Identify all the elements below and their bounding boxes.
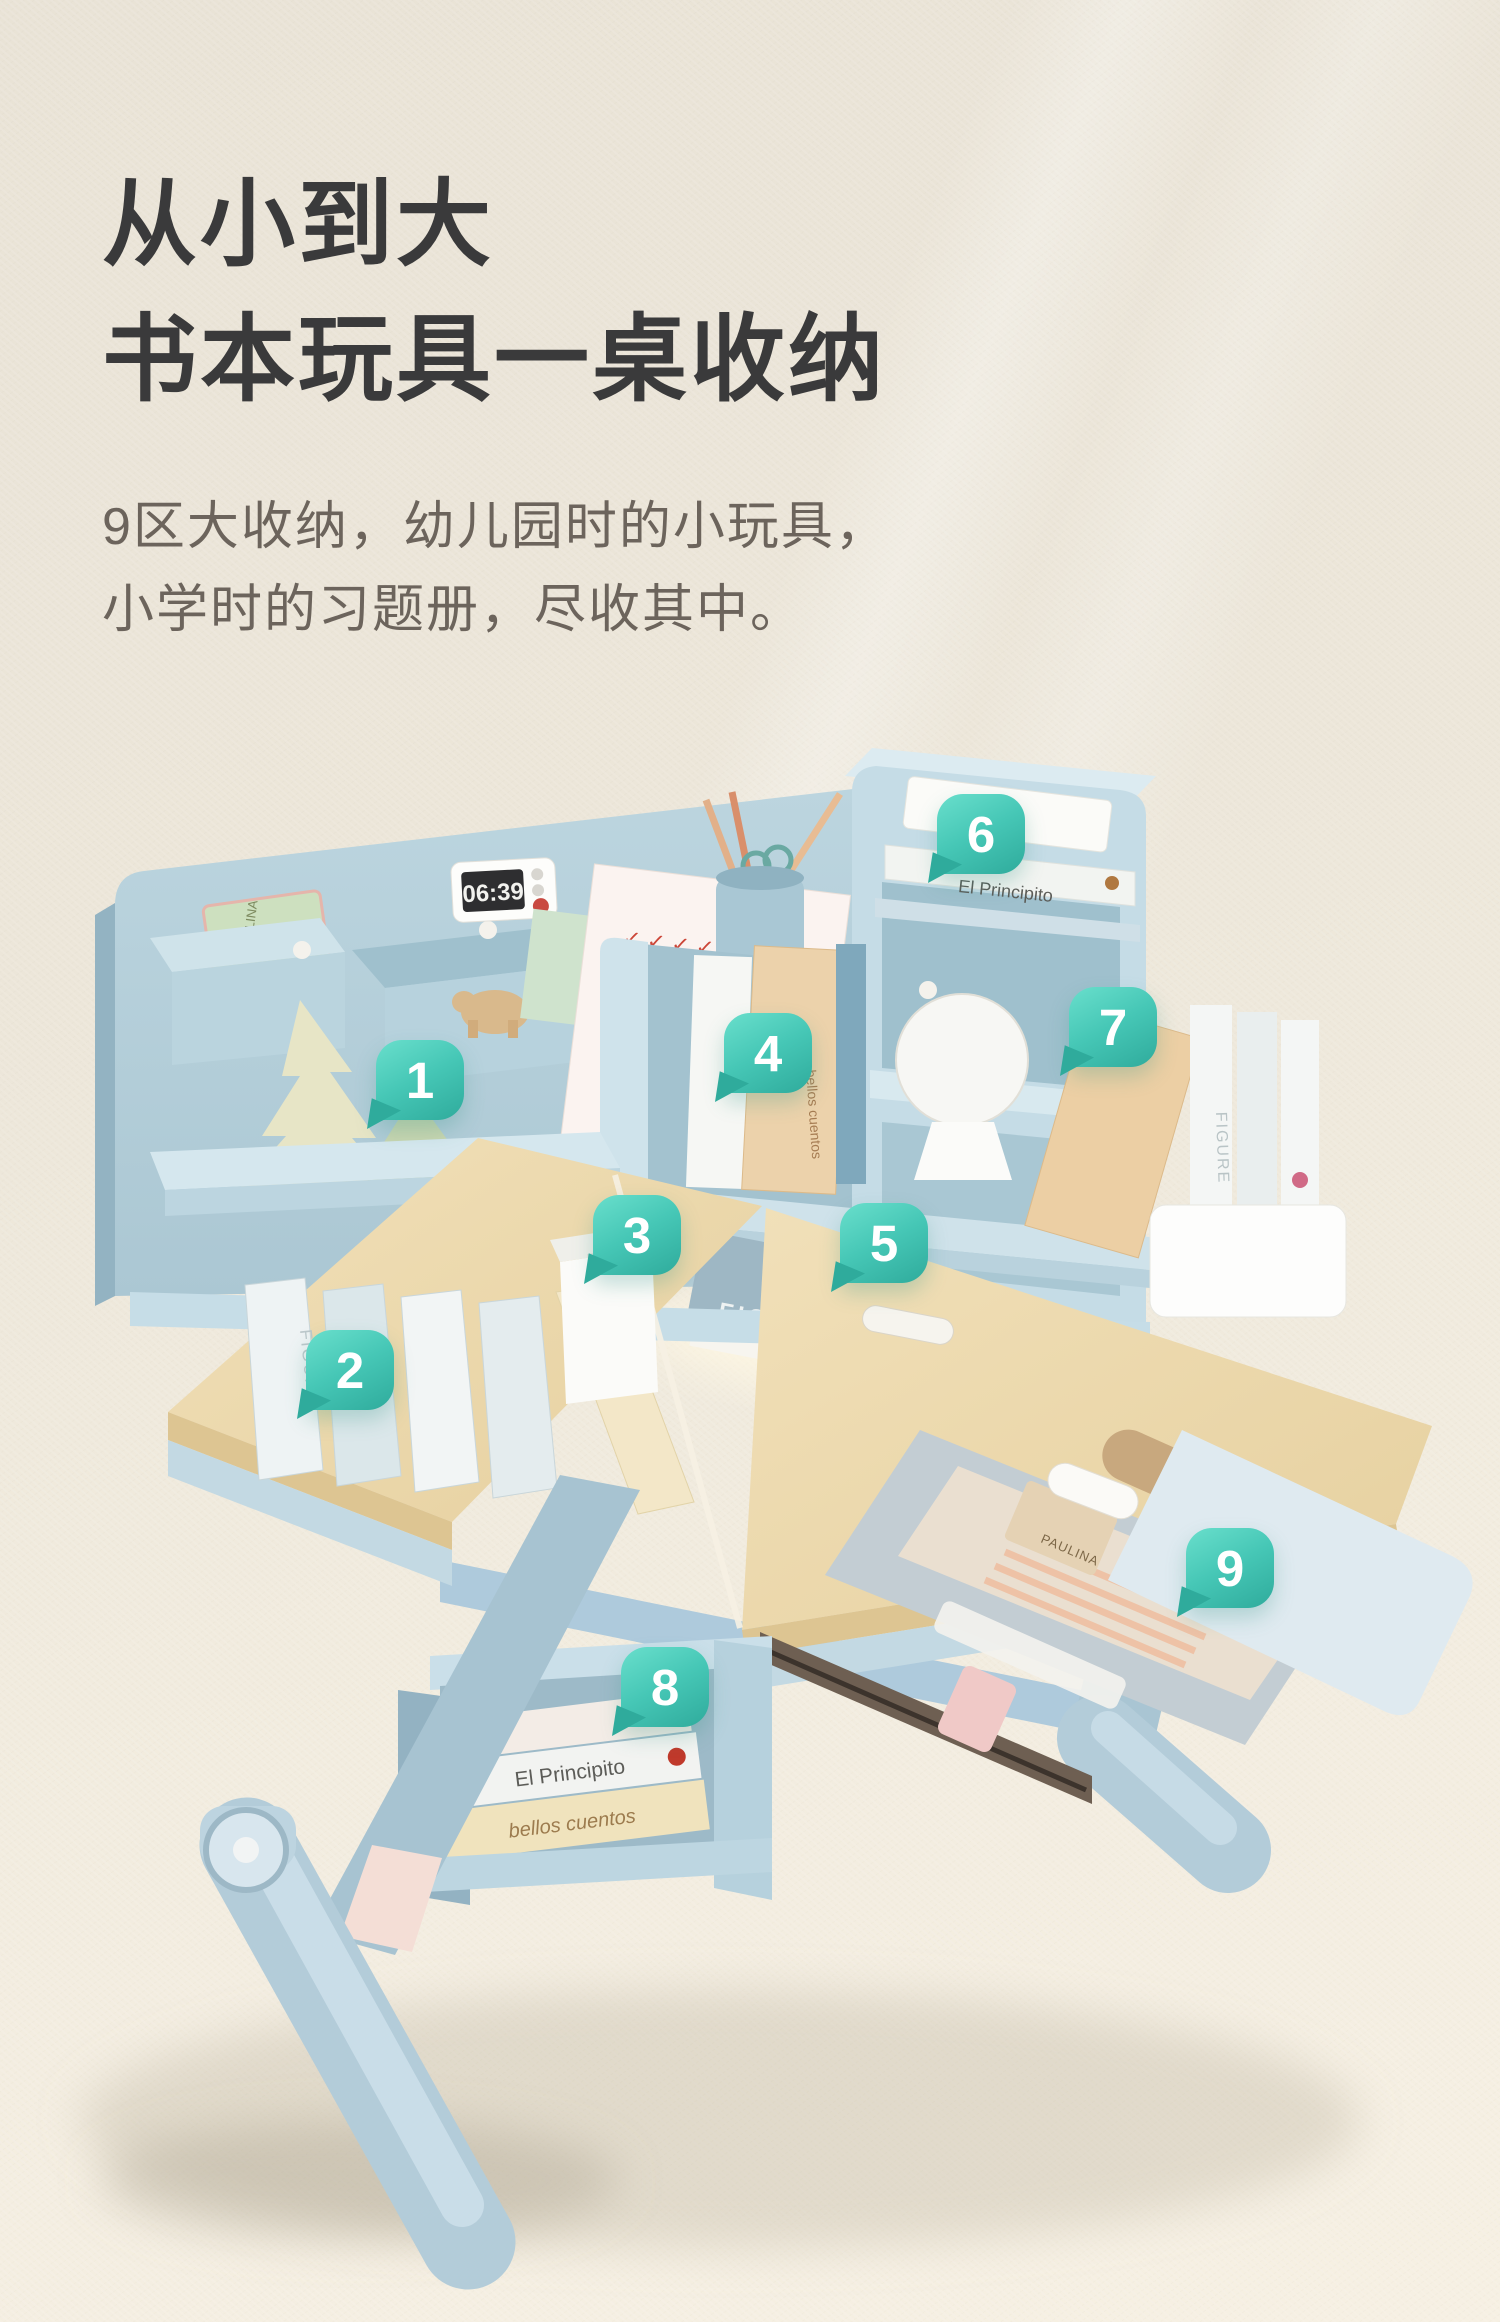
floor-shadow xyxy=(80,1990,1360,2250)
callout-number: 4 xyxy=(754,1028,782,1079)
callout-badge-7[interactable]: 7 xyxy=(1069,987,1157,1067)
timer-display: 06:39 xyxy=(462,878,525,908)
hutch-left-side-panel xyxy=(95,903,115,1306)
callout-badge-5[interactable]: 5 xyxy=(840,1203,928,1283)
callout-number: 5 xyxy=(870,1218,898,1269)
callout-badge-2[interactable]: 2 xyxy=(306,1330,394,1410)
product-infographic: 从小到大 书本玩具一桌收纳 9区大收纳，幼儿园时的小玩具， 小学时的习题册，尽收… xyxy=(0,0,1500,2322)
callout-number: 9 xyxy=(1216,1543,1244,1594)
callout-badge-4[interactable]: 4 xyxy=(724,1013,812,1093)
callout-number: 3 xyxy=(623,1210,651,1261)
callout-number: 7 xyxy=(1099,1002,1127,1053)
callout-badge-3[interactable]: 3 xyxy=(593,1195,681,1275)
white-storage-bin xyxy=(1150,1205,1346,1317)
callout-number: 2 xyxy=(336,1345,364,1396)
callout-badge-1[interactable]: 1 xyxy=(376,1040,464,1120)
desk-photo-illustration: El Principito PAULINA xyxy=(0,0,1500,2322)
callout-number: 1 xyxy=(406,1055,434,1106)
callout-number: 6 xyxy=(967,809,995,860)
callout-badge-9[interactable]: 9 xyxy=(1186,1528,1274,1608)
callout-number: 8 xyxy=(651,1662,679,1713)
callout-badge-6[interactable]: 6 xyxy=(937,794,1025,874)
callout-badge-8[interactable]: 8 xyxy=(621,1647,709,1727)
book-spine-figure-right: FIGURE xyxy=(1212,1112,1232,1185)
